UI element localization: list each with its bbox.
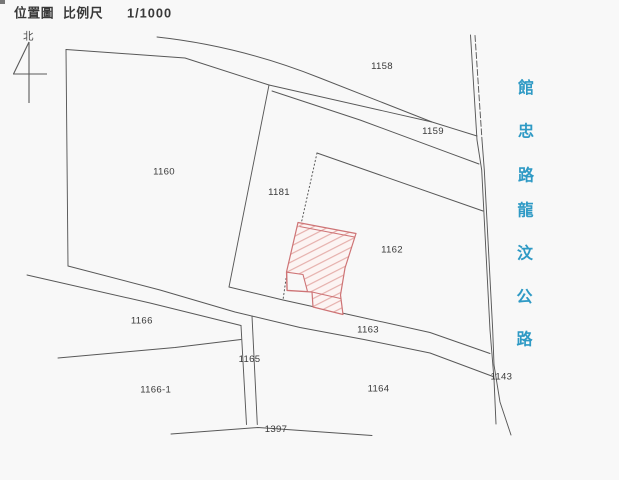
svg-text:位置圖比例尺1/1000: 位置圖比例尺1/1000	[14, 6, 172, 21]
svg-text:1162: 1162	[381, 245, 403, 256]
svg-text:1164: 1164	[368, 384, 390, 395]
svg-text:1158: 1158	[371, 61, 393, 72]
svg-text:1143: 1143	[490, 372, 512, 383]
svg-text:1159: 1159	[422, 126, 444, 137]
svg-text:1166: 1166	[131, 316, 153, 327]
svg-text:館: 館	[518, 78, 534, 97]
svg-text:1166-1: 1166-1	[140, 385, 171, 396]
svg-text:1163: 1163	[357, 325, 379, 336]
svg-text:忠: 忠	[518, 122, 534, 141]
svg-text:1160: 1160	[153, 167, 175, 178]
svg-text:1165: 1165	[239, 354, 261, 365]
svg-text:汶: 汶	[517, 244, 534, 263]
svg-text:1397: 1397	[265, 424, 288, 435]
svg-text:北: 北	[23, 31, 34, 43]
svg-text:1181: 1181	[268, 187, 290, 198]
svg-text:公: 公	[516, 288, 532, 306]
svg-text:路: 路	[516, 330, 533, 349]
svg-text:龍: 龍	[517, 201, 533, 220]
svg-text:路: 路	[518, 166, 535, 185]
